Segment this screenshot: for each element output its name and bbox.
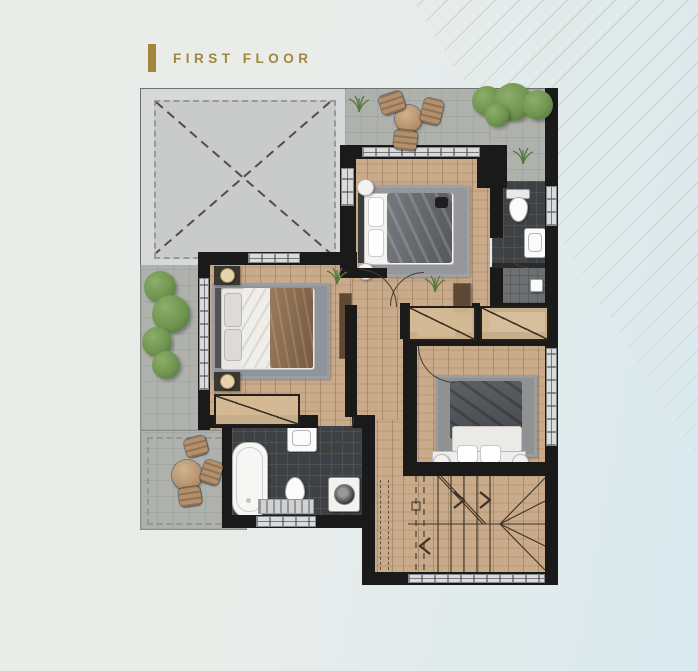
hall-wardrobe [480, 306, 549, 341]
bush [523, 90, 553, 120]
bathtub-drain [246, 498, 251, 503]
window [248, 253, 300, 263]
master-pillow [224, 329, 242, 361]
window [546, 186, 557, 226]
shower-head [530, 279, 543, 292]
window [362, 147, 480, 157]
grass-plant [326, 267, 348, 285]
master-pillow [224, 293, 242, 327]
terrace-table [172, 460, 202, 490]
washbasin-inner [292, 430, 311, 446]
floor-plan [140, 85, 560, 612]
wall [222, 426, 232, 520]
grass-plant [424, 275, 446, 293]
window [408, 574, 545, 583]
hall-wardrobe [408, 306, 476, 341]
floor-title-label: FIRST FLOOR [173, 51, 313, 66]
bed-1-pillow [368, 197, 384, 227]
master-blanket [270, 288, 313, 368]
window [199, 278, 209, 390]
bed-1-pillow [368, 229, 384, 257]
master-closet [214, 394, 300, 426]
terrace-chair [393, 129, 418, 151]
bush [485, 103, 509, 127]
bed-1-throw [435, 197, 448, 208]
wall [403, 332, 417, 475]
bush [152, 351, 180, 379]
wall [490, 188, 503, 238]
wall [403, 462, 558, 476]
master-lamp [220, 374, 235, 389]
bath-mat [258, 499, 314, 514]
grass-plant [348, 95, 370, 113]
stair-guide-line [380, 480, 381, 570]
wall [477, 145, 507, 188]
window [341, 168, 354, 206]
bed-2-pillow [480, 445, 501, 463]
page-title: FIRST FLOOR [148, 44, 313, 72]
bed-2-pillow [457, 445, 478, 463]
master-duvet [242, 288, 270, 368]
stair-guide-line [388, 480, 389, 570]
grass-plant [512, 147, 534, 165]
wall [345, 252, 357, 268]
master-lamp [220, 268, 235, 283]
wall [490, 267, 503, 303]
bed-1-pouf [357, 179, 374, 196]
title-accent-bar [148, 44, 156, 72]
wall [345, 305, 357, 417]
window [546, 348, 557, 446]
wall [340, 145, 356, 268]
roof-void-x-lines [154, 100, 332, 255]
wall [362, 415, 375, 585]
window [256, 516, 316, 527]
washbasin-inner [528, 233, 542, 252]
floor-plan-page: FIRST FLOOR [0, 0, 698, 671]
terrace-chair [178, 486, 202, 508]
staircase [408, 476, 545, 572]
washing-machine-door [334, 484, 355, 505]
